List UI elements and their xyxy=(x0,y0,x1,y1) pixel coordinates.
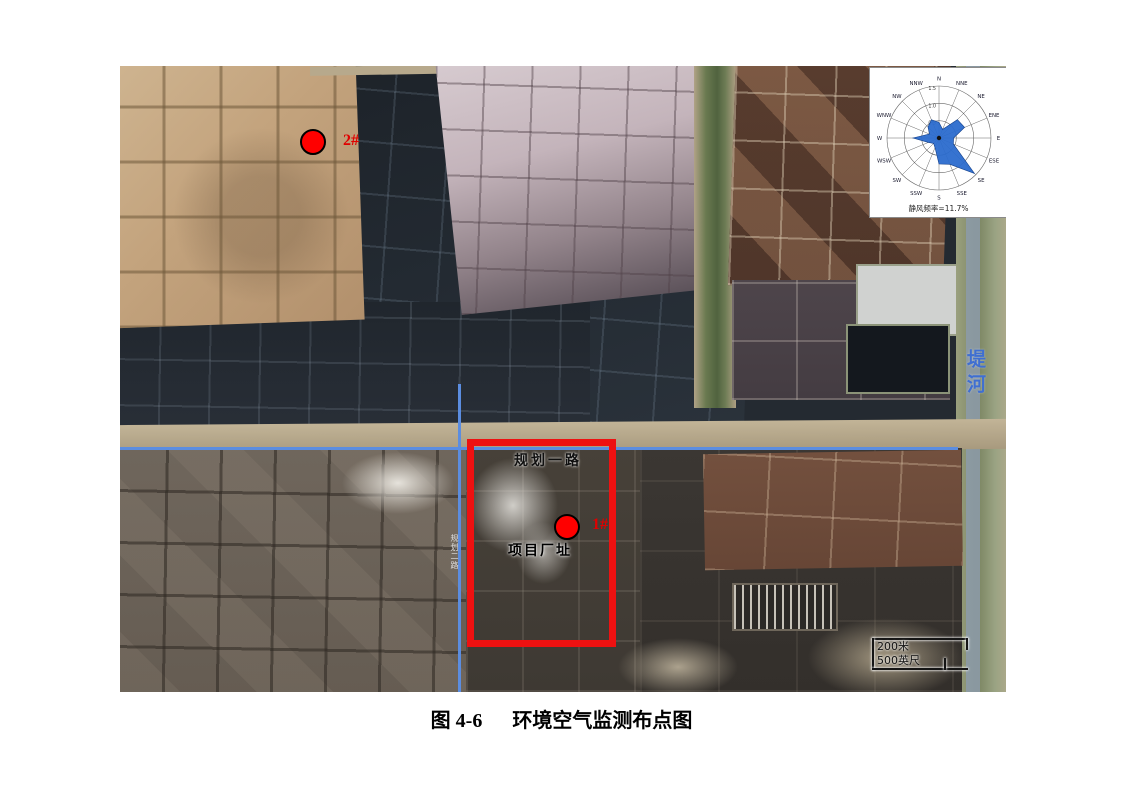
wind-rose-chart: NNNENEENEEESESESSESSSWSWWSWWWNWNWNNW0.51… xyxy=(870,68,1006,206)
calm-frequency-label: 静风频率=11.7% xyxy=(870,203,1006,214)
wind-rose-panel: NNNENEENEEESESESSESSSWSWWSWWWNWNWNNW0.51… xyxy=(869,67,1006,218)
satellite-patch-salt-pans xyxy=(120,66,365,328)
figure-caption-number: 图 4-6 xyxy=(431,710,483,732)
svg-text:WSW: WSW xyxy=(877,159,892,165)
satellite-patch-sand xyxy=(618,638,738,692)
svg-text:S: S xyxy=(937,195,941,201)
scalebar-meter-tick xyxy=(966,638,968,650)
svg-text:SSE: SSE xyxy=(957,191,968,197)
scalebar-feet-line xyxy=(872,668,968,670)
scalebar-feet-tick xyxy=(944,658,946,670)
scalebar-metric-label: 200米 xyxy=(877,640,909,653)
svg-text:SW: SW xyxy=(893,178,902,184)
monitoring-point-2-label: 2# xyxy=(343,132,359,150)
svg-text:NE: NE xyxy=(977,94,985,100)
satellite-patch-pink-ponds xyxy=(436,66,721,315)
scalebar-left-tick xyxy=(872,638,874,670)
svg-text:NNW: NNW xyxy=(909,81,923,87)
svg-text:SSW: SSW xyxy=(910,191,923,197)
document-page: 规划一路 项目厂址 规划二路 堤河 2# 1# 200米 500英尺 NNNEN… xyxy=(0,0,1123,794)
monitoring-point-2-marker xyxy=(300,129,326,155)
svg-text:SE: SE xyxy=(978,178,985,184)
monitoring-point-1-marker xyxy=(554,514,580,540)
satellite-map: 规划一路 项目厂址 规划二路 堤河 2# 1# 200米 500英尺 NNNEN… xyxy=(120,66,1006,692)
svg-text:NNE: NNE xyxy=(956,81,968,87)
svg-text:1.0: 1.0 xyxy=(928,103,936,109)
svg-text:NW: NW xyxy=(892,94,902,100)
figure-caption-title: 环境空气监测布点图 xyxy=(512,710,692,732)
vertical-road-label: 规划二路 xyxy=(450,534,459,570)
svg-text:1.5: 1.5 xyxy=(928,86,936,92)
monitoring-point-1-label: 1# xyxy=(592,516,608,534)
svg-text:N: N xyxy=(937,76,941,82)
svg-text:W: W xyxy=(877,136,883,142)
svg-text:ENE: ENE xyxy=(989,113,1000,119)
satellite-patch-navy-pond xyxy=(846,324,950,394)
planned-road-label: 规划一路 xyxy=(514,450,582,470)
svg-text:WNW: WNW xyxy=(877,113,892,119)
scalebar-imperial-label: 500英尺 xyxy=(877,654,920,667)
svg-text:ESE: ESE xyxy=(989,159,1000,165)
svg-text:E: E xyxy=(997,136,1001,142)
satellite-patch-redbrown-fields xyxy=(703,450,963,570)
satellite-patch-white-area xyxy=(342,452,454,514)
river-label: 堤河 xyxy=(962,349,989,399)
project-site-label: 项目厂址 xyxy=(508,540,572,560)
figure-caption: 图 4-6环境空气监测布点图 xyxy=(0,704,1123,733)
